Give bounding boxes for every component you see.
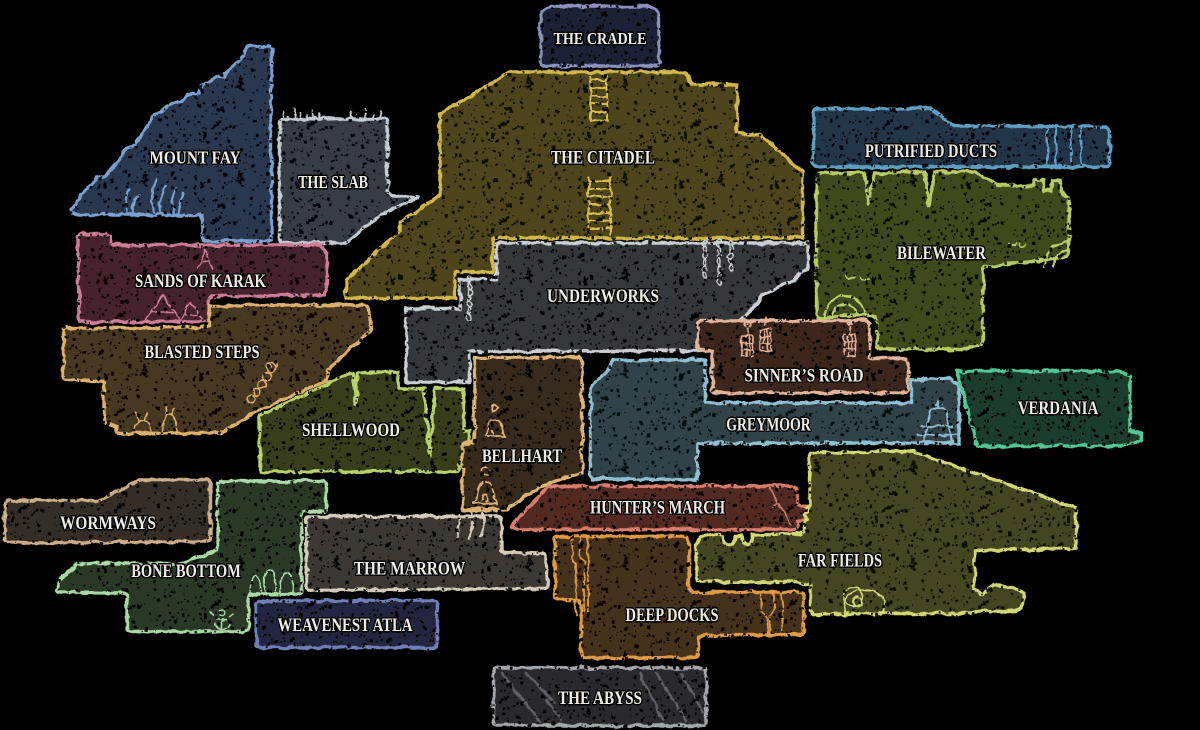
svg-text:DEEP DOCKS: DEEP DOCKS xyxy=(626,606,719,626)
svg-text:PUTRIFIED DUCTS: PUTRIFIED DUCTS xyxy=(865,142,997,162)
svg-text:MOUNT FAY: MOUNT FAY xyxy=(150,148,241,168)
svg-text:THE ABYSS: THE ABYSS xyxy=(558,689,642,709)
svg-text:THE CRADLE: THE CRADLE xyxy=(554,29,647,48)
svg-text:BELLHART: BELLHART xyxy=(482,447,563,467)
svg-text:SHELLWOOD: SHELLWOOD xyxy=(302,421,400,441)
svg-text:BILEWATER: BILEWATER xyxy=(897,244,987,264)
svg-text:HUNTER’S MARCH: HUNTER’S MARCH xyxy=(590,499,725,519)
svg-text:THE CITADEL: THE CITADEL xyxy=(551,149,655,169)
svg-text:FAR FIELDS: FAR FIELDS xyxy=(798,552,882,572)
svg-text:THE SLAB: THE SLAB xyxy=(298,172,368,192)
svg-text:WORMWAYS: WORMWAYS xyxy=(60,514,156,534)
svg-text:SINNER’S ROAD: SINNER’S ROAD xyxy=(745,367,864,387)
svg-text:WEAVENEST ATLA: WEAVENEST ATLA xyxy=(278,616,414,636)
svg-text:BLASTED STEPS: BLASTED STEPS xyxy=(145,343,260,363)
svg-text:THE MARROW: THE MARROW xyxy=(354,560,466,580)
svg-text:UNDERWORKS: UNDERWORKS xyxy=(547,287,659,307)
svg-text:SANDS OF KARAK: SANDS OF KARAK xyxy=(135,272,266,292)
svg-text:GREYMOOR: GREYMOOR xyxy=(726,416,811,436)
svg-text:VERDANIA: VERDANIA xyxy=(1018,399,1099,419)
svg-text:BONE BOTTOM: BONE BOTTOM xyxy=(131,562,241,582)
